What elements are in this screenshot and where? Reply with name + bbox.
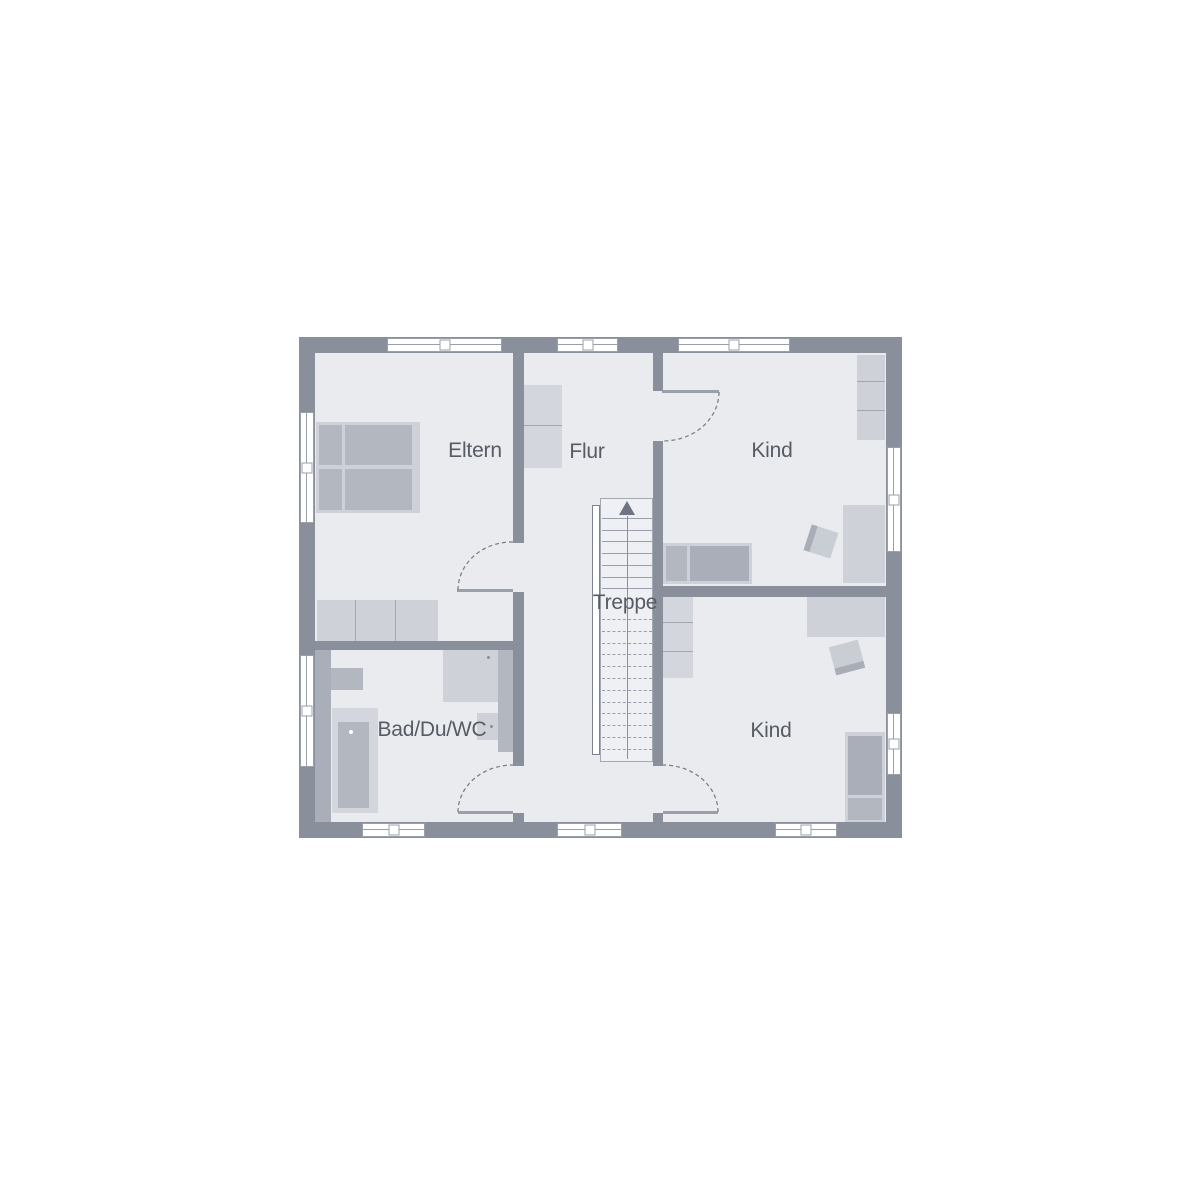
shower-strip (315, 650, 331, 822)
window (557, 338, 618, 352)
floor-plan: Eltern Flur Kind Treppe Bad/Du/WC Kind (0, 0, 1200, 1200)
staircase (600, 498, 653, 762)
washbasin (331, 668, 363, 690)
divider-line (663, 622, 693, 623)
window (678, 338, 790, 352)
divider-line (395, 600, 396, 641)
shower-drain (487, 656, 490, 659)
divider-line (857, 410, 885, 411)
bed-mattress (345, 425, 412, 465)
window (362, 823, 425, 837)
bed-mattress (345, 469, 412, 510)
stair-center-line (627, 516, 628, 759)
wardrobe (857, 355, 885, 440)
door-leaf (662, 390, 719, 393)
wall-flur-kind (653, 353, 663, 391)
dresser (317, 600, 438, 641)
room-label-flur: Flur (547, 441, 627, 463)
window (300, 412, 314, 523)
window (387, 338, 502, 352)
page: { "plan": { "type": "floor-plan", "langu… (0, 0, 1200, 1200)
wall-kind-kind (663, 586, 902, 597)
window (775, 823, 837, 837)
door-leaf (457, 589, 513, 592)
divider-line (663, 651, 693, 652)
bed-pillow (666, 546, 687, 581)
desk (807, 597, 885, 637)
bed-pillow (848, 798, 882, 820)
wall-bad-east (513, 650, 524, 766)
door-post (513, 813, 524, 822)
window (887, 447, 901, 552)
wall-eltern-bad (315, 641, 523, 650)
bed-pillow (319, 425, 342, 465)
stair-handrail (592, 505, 600, 755)
window (557, 823, 622, 837)
divider-line (857, 381, 885, 382)
window (300, 655, 314, 767)
room-label-treppe: Treppe (575, 592, 675, 614)
divider-line (355, 600, 356, 641)
room-label-kind-top: Kind (712, 440, 832, 462)
bed-mattress (690, 546, 749, 581)
door-leaf (663, 811, 718, 814)
door-leaf (458, 811, 513, 814)
divider-line (524, 425, 562, 426)
room-label-eltern: Eltern (415, 440, 535, 462)
desk (843, 505, 885, 583)
room-label-kind-bottom: Kind (711, 720, 831, 742)
shower (443, 650, 498, 702)
window (887, 713, 901, 775)
room-label-bad: Bad/Du/WC (362, 719, 502, 741)
bathtub-drain (349, 730, 353, 734)
bed-mattress (848, 736, 882, 795)
door-post (653, 813, 663, 822)
bed-pillow (319, 469, 342, 510)
